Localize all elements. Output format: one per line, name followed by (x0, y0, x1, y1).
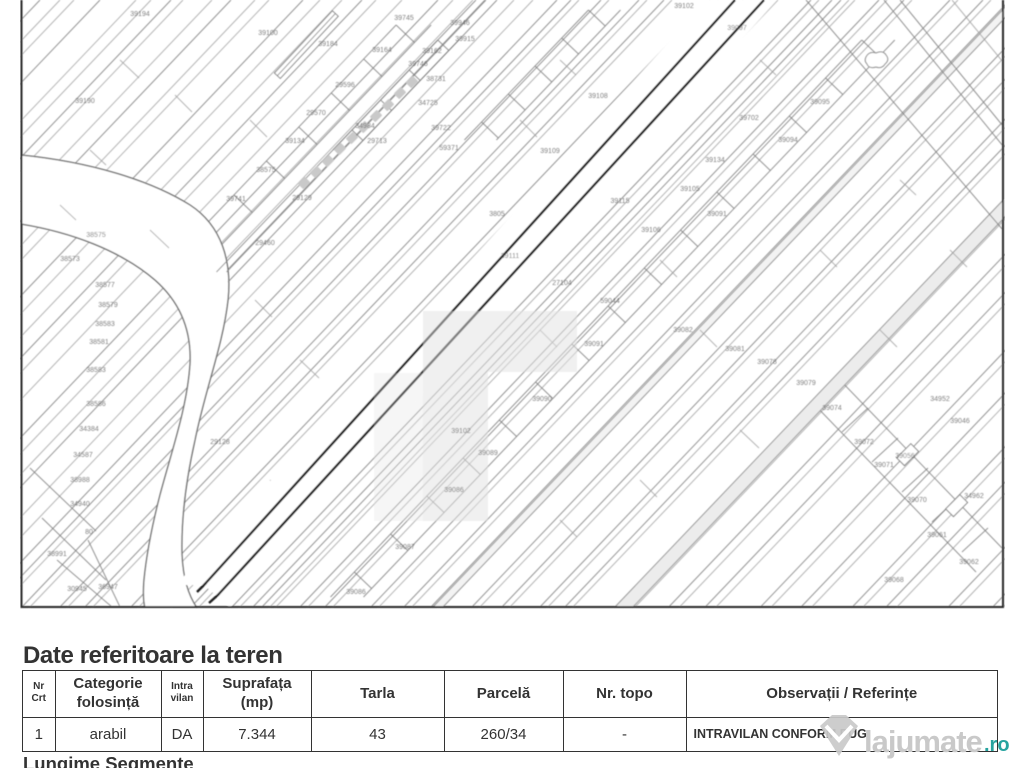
svg-text:39081: 39081 (725, 346, 745, 353)
svg-text:39184: 39184 (318, 41, 338, 48)
svg-text:38583: 38583 (86, 367, 106, 374)
svg-text:39071: 39071 (874, 462, 894, 469)
svg-text:39741: 39741 (226, 196, 246, 203)
svg-text:39056: 39056 (895, 453, 915, 460)
svg-text:39915: 39915 (455, 36, 475, 43)
svg-text:34984: 34984 (355, 123, 375, 130)
svg-text:39079: 39079 (796, 380, 816, 387)
svg-text:30945: 30945 (67, 586, 87, 593)
svg-text:39074: 39074 (822, 405, 842, 412)
svg-text:34952: 34952 (930, 396, 950, 403)
svg-text:38575: 38575 (86, 232, 106, 239)
svg-text:39090: 39090 (532, 396, 552, 403)
svg-text:29570: 29570 (306, 110, 326, 117)
svg-text:39089: 39089 (478, 450, 498, 457)
svg-text:38581: 38581 (89, 339, 109, 346)
svg-text:27104: 27104 (552, 280, 572, 287)
svg-text:38586: 38586 (86, 401, 106, 408)
svg-text:34962: 34962 (964, 493, 984, 500)
svg-text:38579: 38579 (98, 302, 118, 309)
svg-text:39722: 39722 (431, 125, 451, 132)
svg-text:39097: 39097 (727, 25, 747, 32)
svg-text:39105: 39105 (680, 186, 700, 193)
svg-text:39102: 39102 (674, 3, 694, 10)
svg-text:39086: 39086 (346, 589, 366, 596)
svg-text:36947: 36947 (98, 584, 118, 591)
svg-text:38573: 38573 (60, 256, 80, 263)
svg-text:39046: 39046 (950, 418, 970, 425)
svg-text:39111: 39111 (501, 253, 520, 260)
svg-text:39746: 39746 (408, 61, 428, 68)
svg-text:39068: 39068 (884, 577, 904, 584)
svg-text:29129: 29129 (292, 195, 312, 202)
svg-text:39702: 39702 (739, 115, 759, 122)
svg-text:39162: 39162 (422, 48, 442, 55)
svg-text:34384: 34384 (79, 426, 99, 433)
svg-text:3805: 3805 (489, 211, 505, 218)
svg-text:39078: 39078 (757, 359, 777, 366)
svg-text:38731: 38731 (426, 76, 446, 83)
svg-text:39095: 39095 (810, 99, 830, 106)
svg-text:39134: 39134 (285, 138, 305, 145)
svg-text:59371: 59371 (439, 145, 459, 152)
svg-text:39082: 39082 (673, 327, 693, 334)
svg-text:39115: 39115 (611, 198, 630, 205)
svg-text:39108: 39108 (588, 93, 608, 100)
svg-text:39087: 39087 (395, 544, 415, 551)
svg-text:39061: 39061 (927, 532, 947, 539)
svg-text:39190: 39190 (75, 98, 95, 105)
svg-text:39745: 39745 (394, 15, 414, 22)
svg-text:29713: 29713 (367, 138, 387, 145)
svg-text:80: 80 (85, 529, 93, 536)
svg-text:39946: 39946 (450, 20, 470, 27)
svg-text:39091: 39091 (707, 211, 727, 218)
svg-text:38575: 38575 (256, 167, 276, 174)
svg-text:39106: 39106 (641, 227, 661, 234)
svg-text:39194: 39194 (130, 11, 150, 18)
svg-text:29460: 29460 (255, 240, 275, 247)
svg-text:39134: 39134 (705, 157, 725, 164)
svg-text:38991: 38991 (47, 551, 67, 558)
svg-text:39109: 39109 (540, 148, 560, 155)
svg-text:39062: 39062 (959, 559, 979, 566)
svg-text:29596: 29596 (335, 82, 355, 89)
svg-text:39086: 39086 (444, 487, 464, 494)
svg-text:34725: 34725 (418, 100, 438, 107)
svg-text:39072: 39072 (854, 439, 874, 446)
svg-text:39070: 39070 (907, 497, 927, 504)
svg-text:29128: 29128 (210, 439, 230, 446)
svg-text:38988: 38988 (70, 477, 90, 484)
svg-text:38583: 38583 (95, 321, 115, 328)
svg-text:39091: 39091 (584, 341, 604, 348)
svg-text:59044: 59044 (600, 298, 620, 305)
svg-text:34940: 34940 (70, 501, 90, 508)
svg-text:39102: 39102 (451, 428, 471, 435)
svg-text:39100: 39100 (258, 30, 278, 37)
svg-text:34587: 34587 (73, 452, 93, 459)
svg-text:39164: 39164 (372, 47, 392, 54)
svg-text:39094: 39094 (778, 137, 798, 144)
svg-text:38577: 38577 (95, 282, 115, 289)
